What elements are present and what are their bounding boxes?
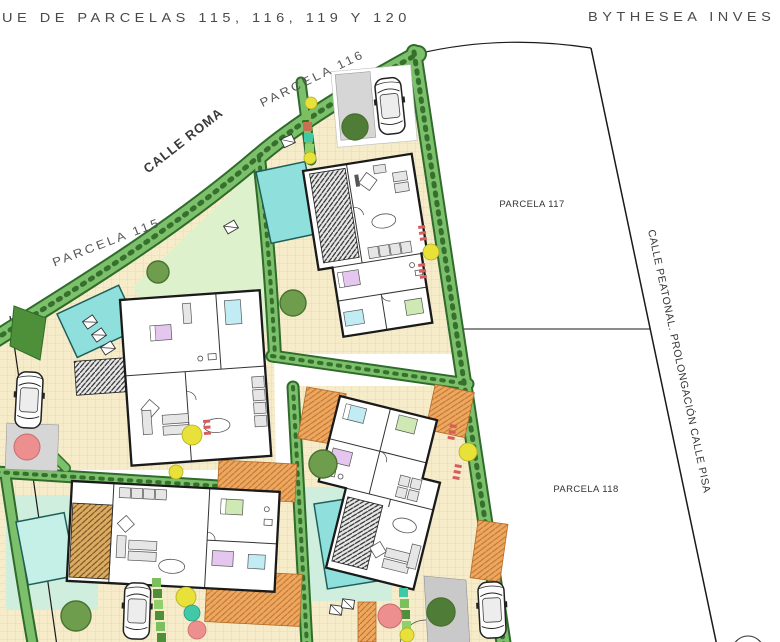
title-left: UE DE PARCELAS 115, 116, 119 Y 120 [2, 11, 411, 25]
street-line-calle-peatonal [591, 48, 717, 642]
parcel-117-label: PARCELA 117 [499, 199, 564, 210]
street-label-calle-roma: CALLE ROMA [141, 105, 226, 176]
tree [280, 290, 306, 316]
site-plan-canvas: UE DE PARCELAS 115, 116, 119 Y 120 BYTHE… [0, 0, 780, 642]
yellow-shrub [305, 97, 317, 109]
parcel-115-parking [5, 423, 59, 471]
yellow-shrub [423, 244, 439, 260]
yellow-shrub [176, 587, 196, 607]
pink-shrub [188, 621, 206, 639]
deck-119 [69, 503, 113, 579]
teal-shrub [184, 605, 200, 621]
tree [427, 598, 455, 626]
parcel-116-driveway [331, 65, 417, 148]
street-tree-outline [732, 636, 764, 642]
parcel-118-label: PARCELA 118 [553, 484, 618, 495]
yellow-shrub [459, 443, 477, 461]
yellow-shrub [304, 152, 316, 164]
deck-115 [74, 358, 126, 395]
yellow-shrub [169, 465, 183, 479]
site-plan-drawing: UE DE PARCELAS 115, 116, 119 Y 120 BYTHE… [0, 0, 780, 642]
title-right: BYTHESEA INVES [588, 10, 775, 24]
tree [309, 450, 337, 478]
parcel-117-top-line [417, 42, 591, 54]
car-parcel-115 [12, 371, 46, 429]
car-parcel-119 [121, 582, 154, 639]
tree [342, 114, 368, 140]
car-parcel-120 [475, 581, 509, 639]
street-label-calle-peatonal: CALLE PEATONAL. PROLONGACIÓN CALLE PISA [645, 228, 714, 494]
tree [61, 601, 91, 631]
pink-shrub [378, 604, 402, 628]
pink-shrub [14, 434, 40, 460]
yellow-shrub [400, 628, 414, 642]
tree [147, 261, 169, 283]
villa-119-building [67, 481, 280, 592]
yellow-shrub [182, 425, 202, 445]
